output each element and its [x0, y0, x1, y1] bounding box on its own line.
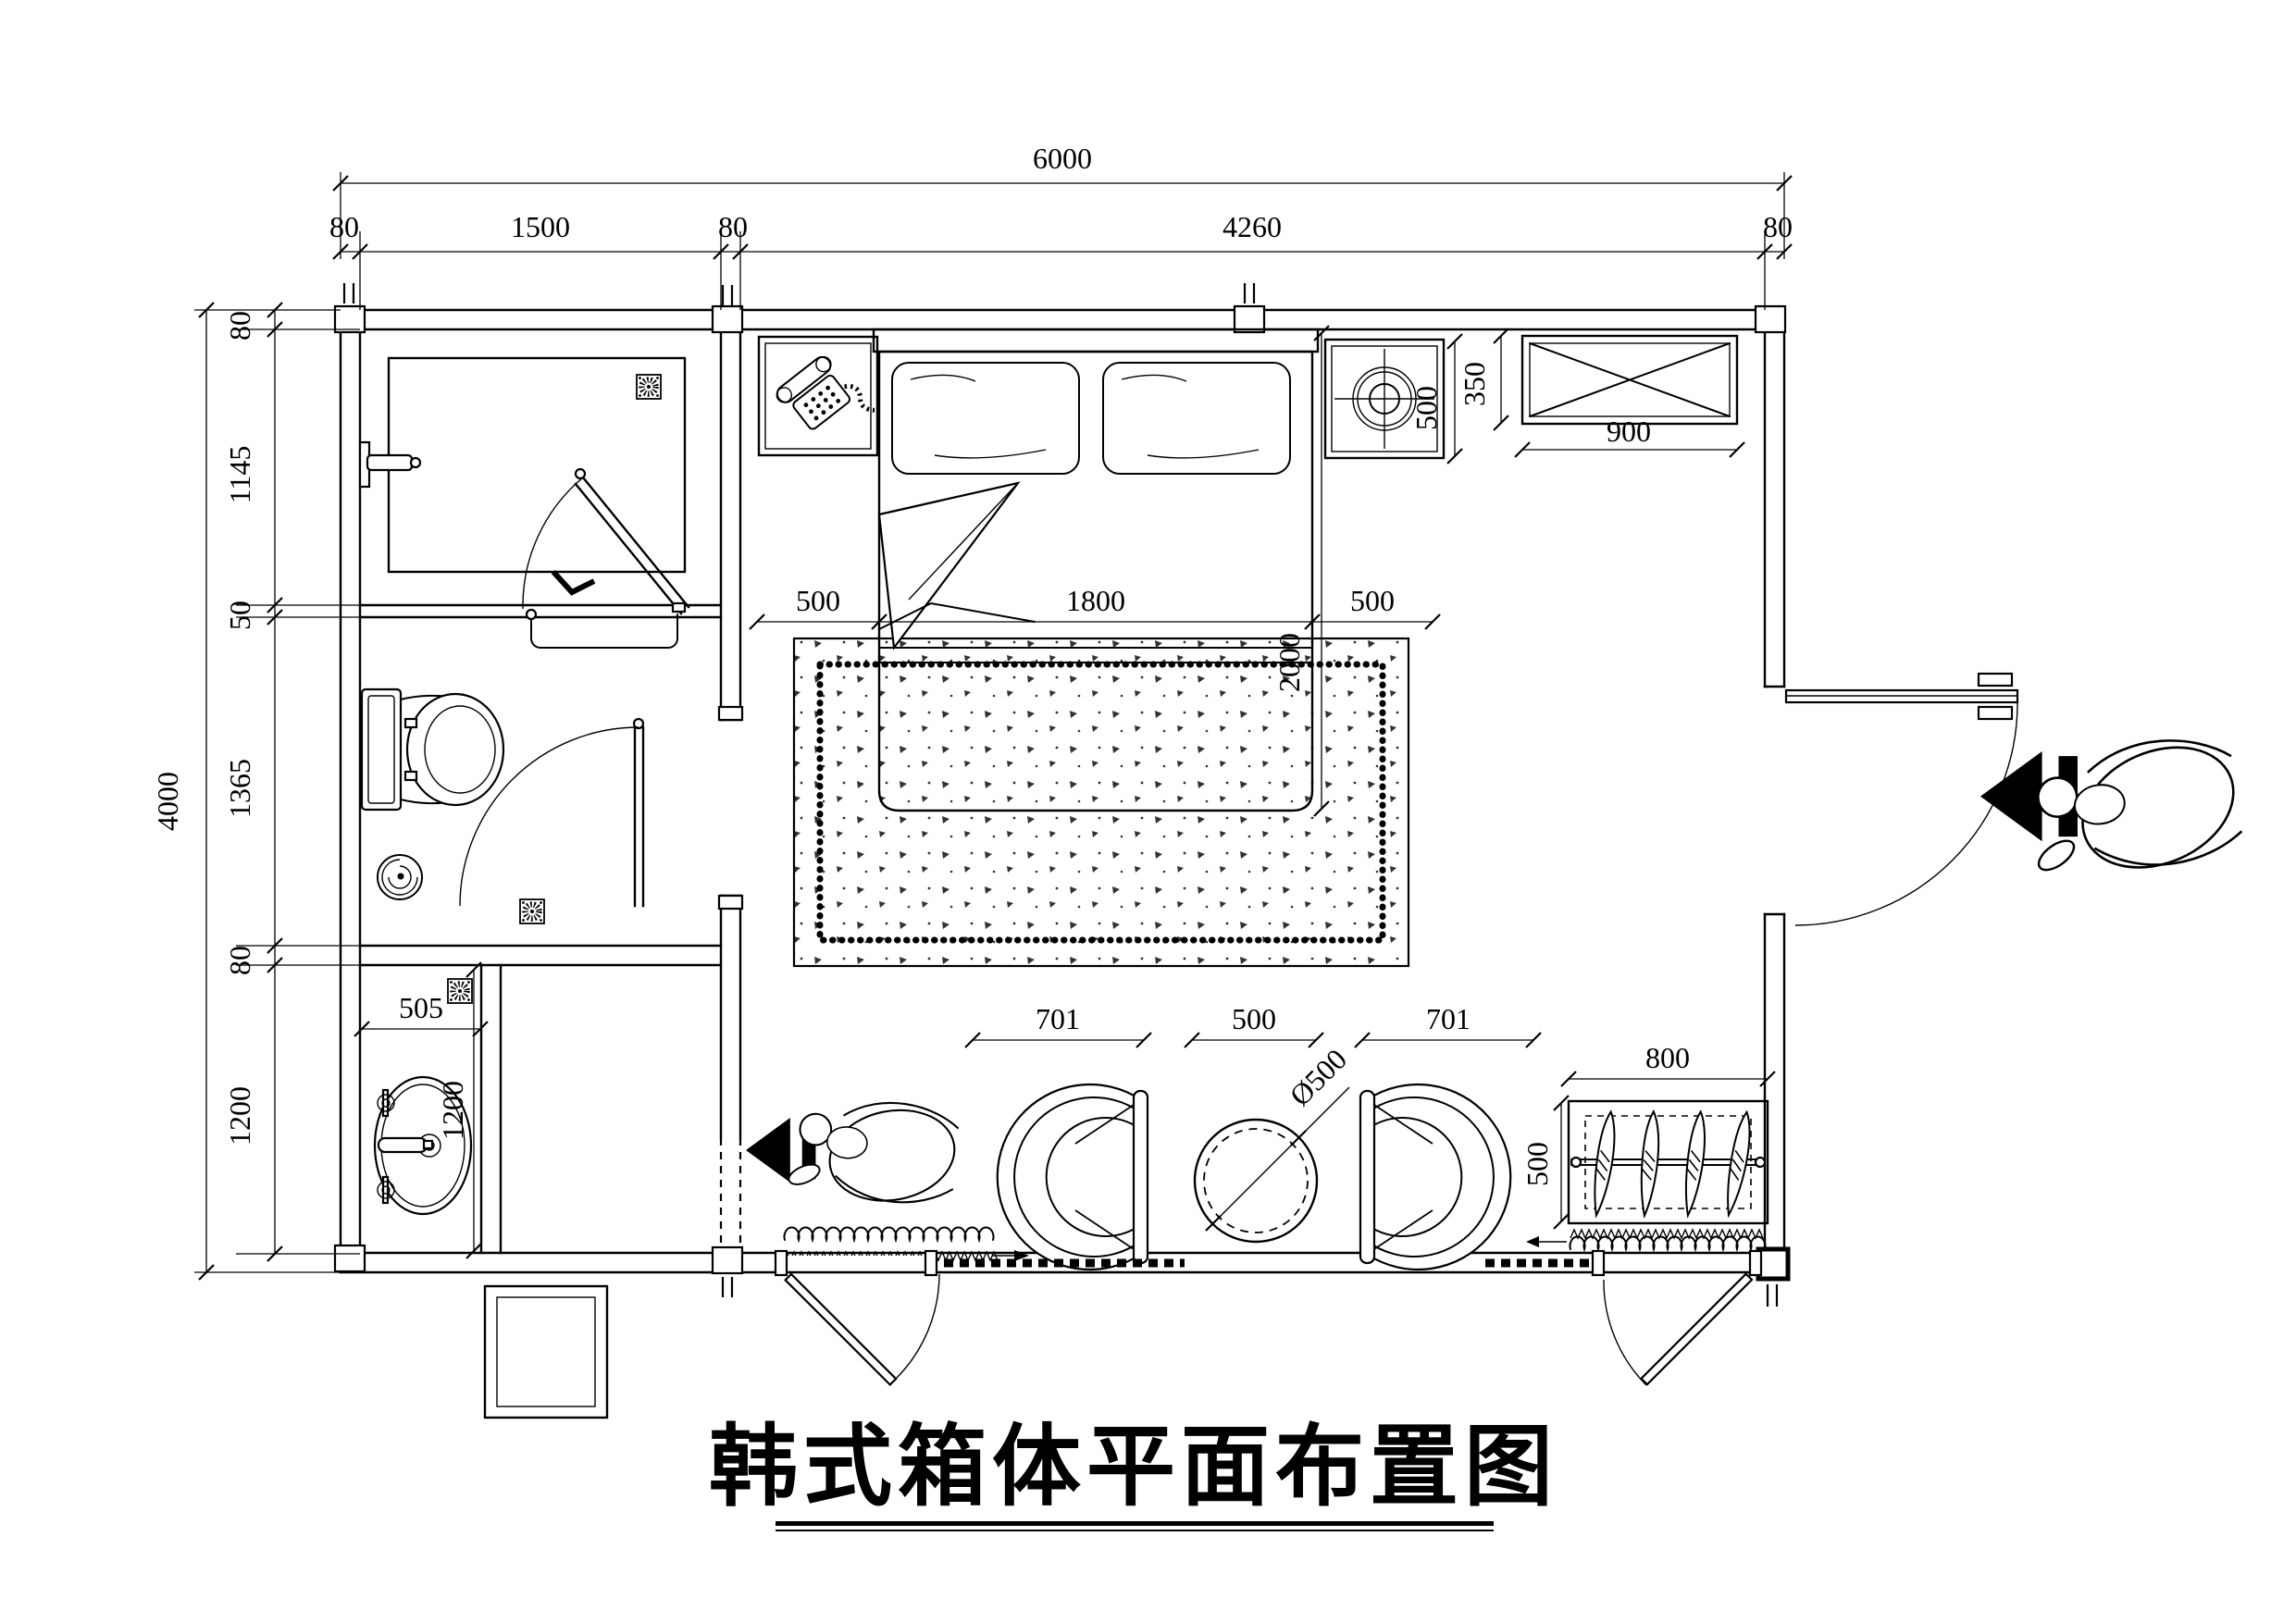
- dim-stool: 500: [1409, 334, 1462, 464]
- plan-canvas: 6000 80 1500 80 4260 80 4000 80 1145 50 …: [0, 0, 2296, 1623]
- hanger-icon: [1589, 1110, 1619, 1216]
- hanger-icon: [1681, 1110, 1708, 1216]
- dim-label: 900: [1607, 415, 1651, 448]
- dim-label: 80: [718, 210, 748, 243]
- wardrobe: [1569, 1101, 1768, 1223]
- ac-cabinet: [1522, 336, 1737, 424]
- dim-label: 500: [1520, 1142, 1554, 1186]
- title-text: 韩式箱体平面布置图: [709, 1418, 1558, 1517]
- dim-label: 4000: [151, 772, 184, 831]
- toilet-room: [362, 689, 742, 923]
- dim-label: 350: [1458, 362, 1491, 406]
- dim-label: 500: [1232, 1002, 1276, 1035]
- dim-top-segments: 80 1500 80 4260 80: [329, 210, 1793, 310]
- exterior-step: [485, 1286, 607, 1418]
- dim-label: 500: [1409, 386, 1443, 430]
- cased-opening: [721, 1138, 740, 1253]
- dim-label: Ø500: [1283, 1042, 1353, 1112]
- dim-bed-chain: 500 1800 500: [750, 584, 1440, 629]
- slide-arrow-left: [1526, 1236, 1539, 1247]
- round-table: [1195, 1087, 1349, 1242]
- dim-label: 701: [1036, 1002, 1080, 1035]
- dim-label: 500: [796, 584, 840, 617]
- dim-label: 80: [223, 946, 256, 975]
- area-rug: [794, 638, 1409, 966]
- floor-drain-icon: [448, 979, 472, 1003]
- shower-head: [360, 442, 420, 487]
- dim-label: 80: [329, 210, 359, 243]
- dim-label: 80: [223, 311, 256, 341]
- dim-ac: 350 900: [1458, 328, 1744, 457]
- hanger-icon: [1722, 1111, 1756, 1217]
- dim-label: 6000: [1033, 142, 1092, 175]
- hanger-icon: [1637, 1111, 1661, 1217]
- folded-blanket: [879, 483, 1035, 648]
- towel-bar: [531, 614, 677, 648]
- dim-label: 80: [1763, 210, 1793, 243]
- dim-label: 4260: [1222, 210, 1282, 243]
- shower-door: [523, 469, 689, 613]
- drawing-title: 韩式箱体平面布置图: [709, 1418, 1558, 1531]
- dim-label: 50: [223, 601, 256, 630]
- title-underline: [776, 1521, 1494, 1526]
- telephone-table: [759, 337, 877, 455]
- dim-label: 1200: [436, 1081, 469, 1140]
- telephone-icon: [773, 351, 875, 453]
- bottom-door-right: [1593, 1251, 1761, 1385]
- bottom-door-left: [776, 1251, 939, 1385]
- floor-drain-icon: [520, 899, 544, 923]
- entry-door: [1786, 674, 2017, 925]
- floor-plan-drawing: 6000 80 1500 80 4260 80 4000 80 1145 50 …: [0, 0, 2296, 1623]
- dim-label: 505: [399, 991, 443, 1024]
- dim-label: 2000: [1272, 633, 1306, 692]
- tub-chair-right: [1360, 1084, 1510, 1270]
- dim-label: 800: [1645, 1041, 1690, 1074]
- dim-label: 1800: [1066, 584, 1125, 617]
- dim-label: 500: [1350, 584, 1395, 617]
- curtain-right: [1526, 1230, 1766, 1249]
- seating-area: [998, 1084, 1511, 1270]
- tub-chair-left: [998, 1084, 1148, 1270]
- title-underline-thin: [776, 1530, 1494, 1531]
- dim-label: 1500: [511, 210, 570, 243]
- dim-label: 1365: [223, 759, 256, 818]
- spiral-floor-drain: [378, 855, 422, 899]
- dim-label: 1200: [223, 1086, 256, 1146]
- toilet: [362, 689, 503, 810]
- dim-label: 1145: [223, 446, 256, 504]
- dim-label: 701: [1426, 1002, 1471, 1035]
- door-swing-arrow: [553, 572, 594, 592]
- floor-drain-icon: [637, 375, 661, 399]
- person-figure: [2018, 721, 2258, 900]
